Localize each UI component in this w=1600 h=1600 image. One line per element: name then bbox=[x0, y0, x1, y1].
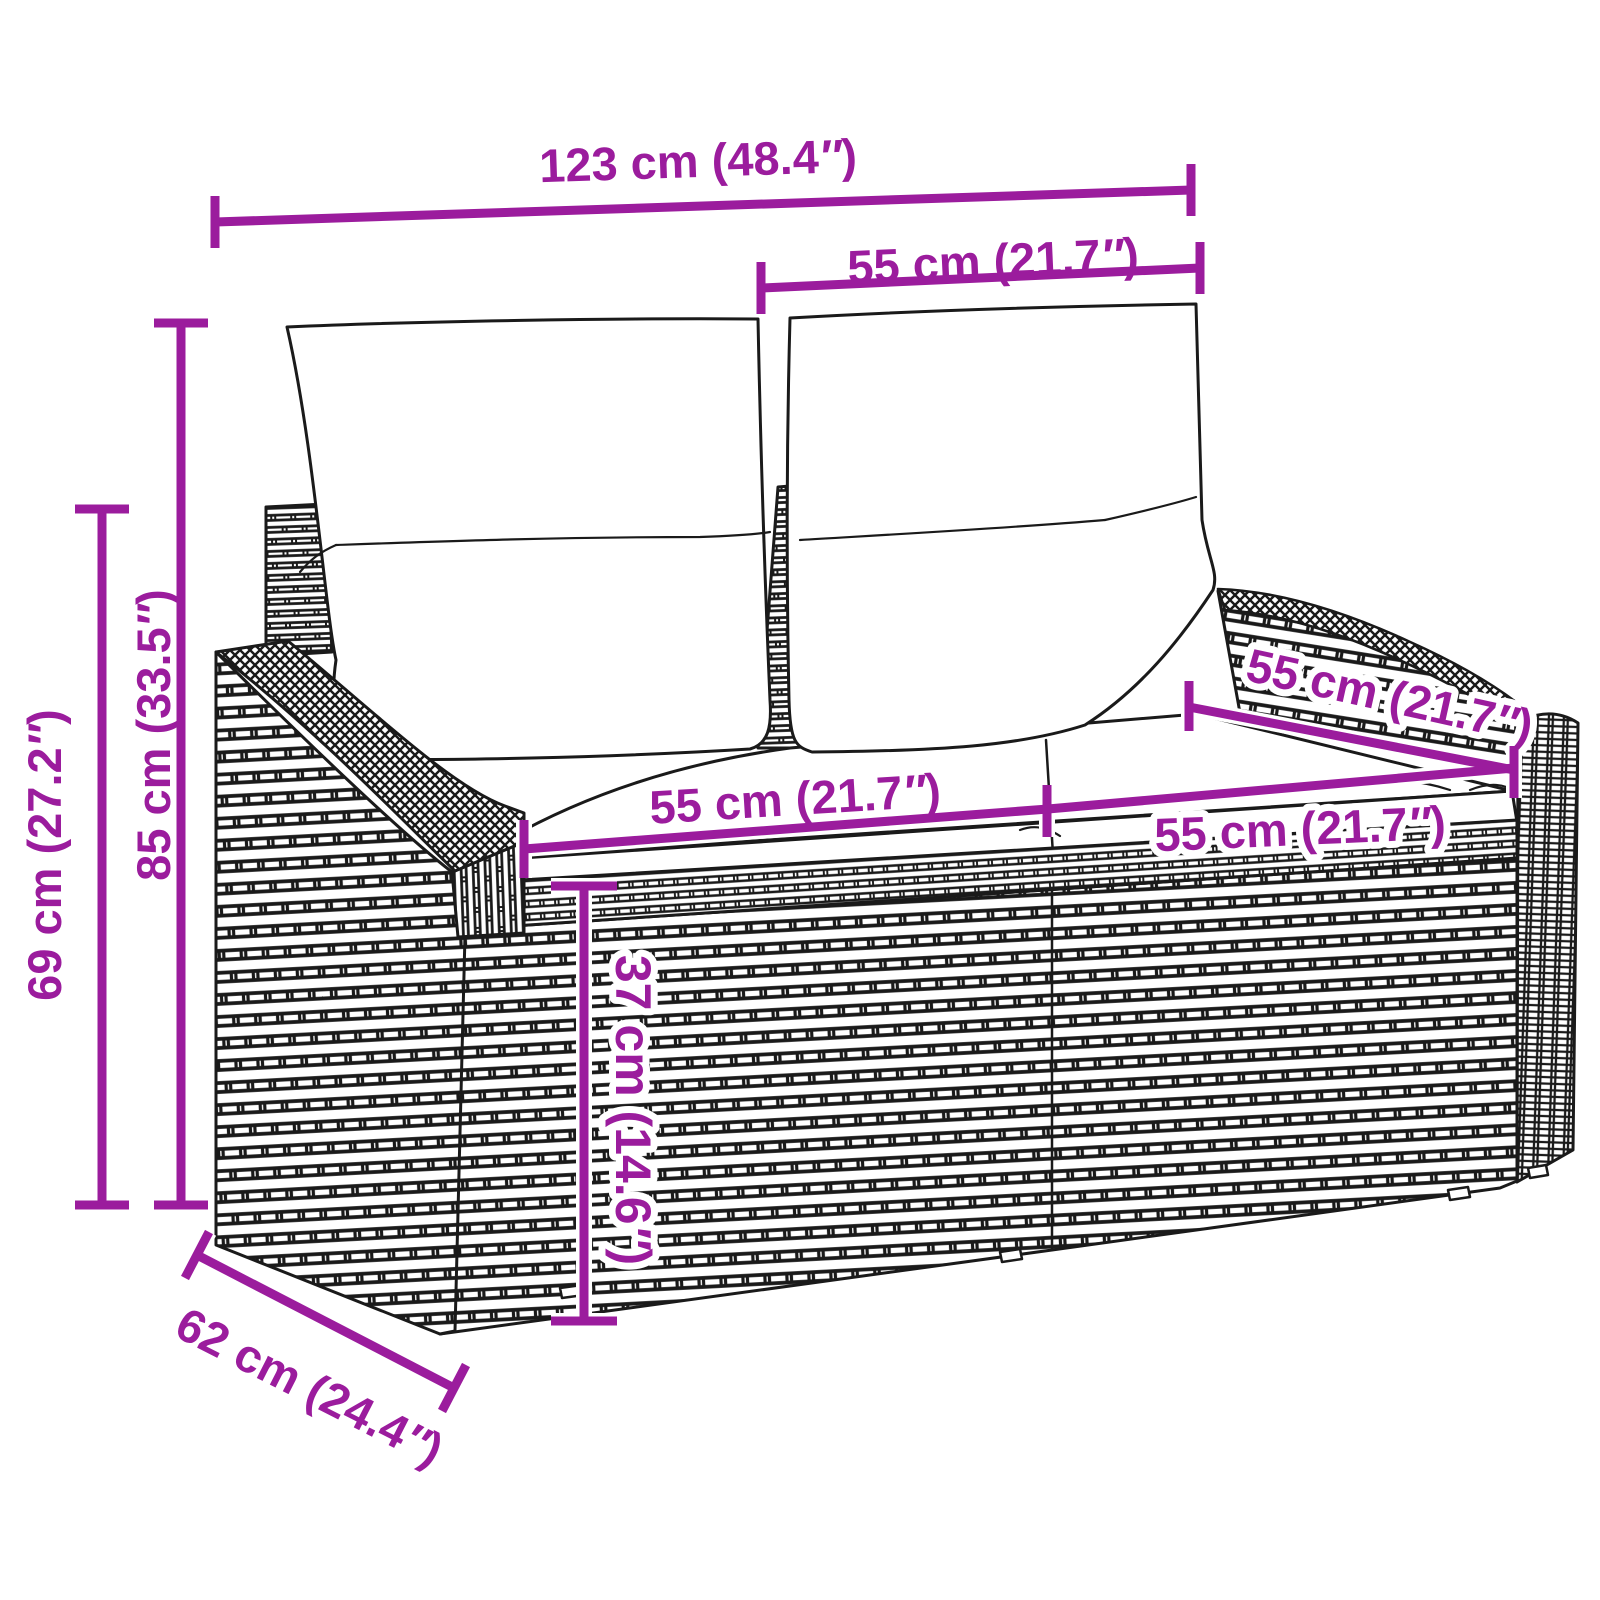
svg-text:85 cm (33.5″): 85 cm (33.5″) bbox=[127, 589, 180, 881]
svg-text:69 cm (27.2″): 69 cm (27.2″) bbox=[18, 709, 71, 1001]
svg-text:37 cm (14.6″): 37 cm (14.6″) bbox=[605, 955, 661, 1265]
svg-text:123 cm (48.4″): 123 cm (48.4″) bbox=[538, 129, 857, 193]
